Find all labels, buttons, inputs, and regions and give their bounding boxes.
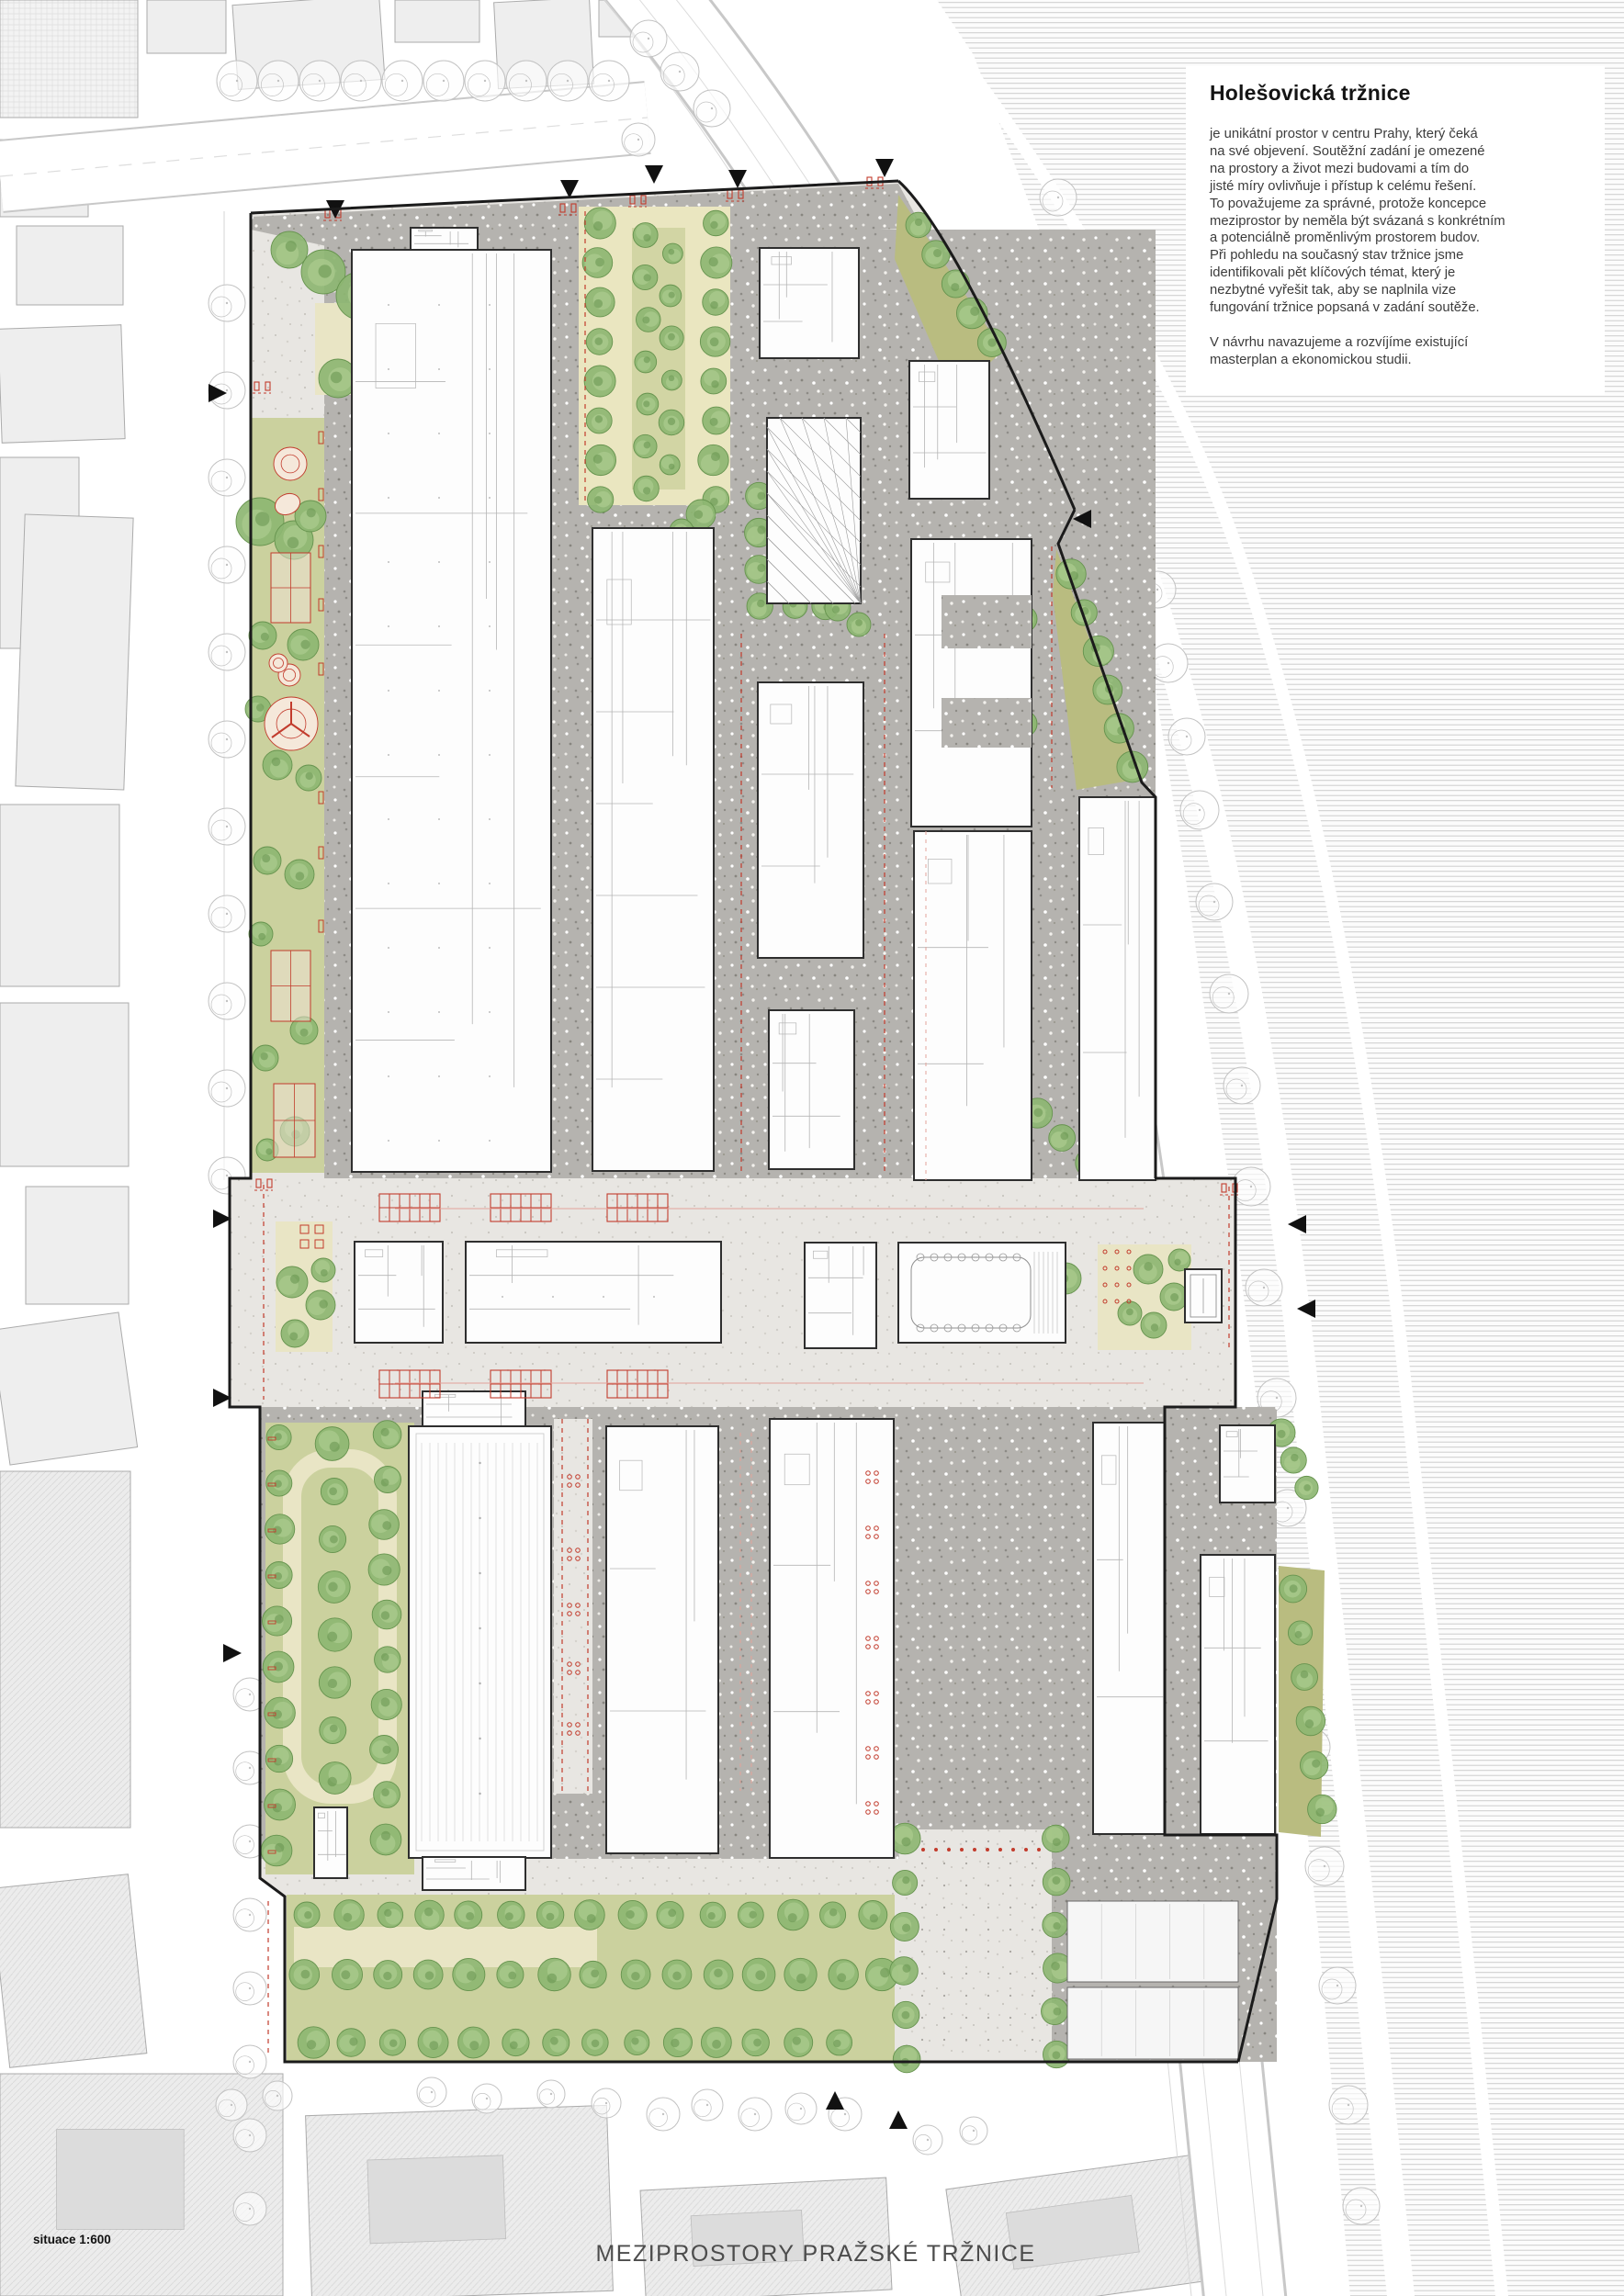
- circle: [1312, 1760, 1320, 1768]
- circle: [1170, 1293, 1179, 1301]
- tree-icon: [701, 247, 732, 278]
- plaza-dot: [1032, 1840, 1033, 1842]
- context-tree-icon: [537, 2080, 565, 2108]
- tree-icon: [375, 1647, 400, 1672]
- tree-icon: [742, 2029, 769, 2055]
- circle: [502, 1296, 503, 1298]
- red-dot: [960, 1848, 964, 1851]
- context-building: [16, 514, 133, 790]
- circle: [226, 651, 228, 653]
- play-sand-circle: [269, 654, 288, 672]
- tree-icon: [704, 1960, 733, 1989]
- circle: [479, 1627, 480, 1629]
- circle: [438, 497, 440, 499]
- plaza-dot: [1032, 1885, 1033, 1886]
- context-building: [147, 0, 226, 53]
- rect: [1067, 1987, 1238, 2059]
- circle: [226, 389, 228, 391]
- tree-icon: [418, 2027, 448, 2057]
- market-hall: [767, 418, 861, 603]
- circle: [328, 1582, 337, 1592]
- circle: [300, 640, 310, 649]
- circle: [381, 1479, 389, 1487]
- context-tree-icon: [233, 2119, 266, 2152]
- circle: [383, 1972, 391, 1980]
- hall-pocket: [942, 595, 1032, 648]
- circle: [438, 818, 440, 820]
- circle: [710, 337, 719, 346]
- tree-icon: [413, 1960, 443, 1989]
- circle: [595, 415, 603, 422]
- plaza-dot: [921, 1929, 923, 1930]
- circle: [915, 219, 922, 226]
- circle: [1250, 1186, 1252, 1187]
- tree-icon: [337, 2029, 366, 2057]
- tree-icon: [276, 1266, 308, 1298]
- circle: [643, 487, 650, 494]
- circle: [712, 2040, 721, 2049]
- circle: [479, 1517, 480, 1519]
- circle: [668, 1909, 676, 1918]
- tree-icon: [1133, 1255, 1163, 1284]
- circle: [710, 301, 718, 310]
- rect: [1067, 1901, 1238, 1982]
- plaza-dot: [965, 1840, 967, 1842]
- circle: [833, 2040, 840, 2047]
- tree-icon: [584, 208, 615, 239]
- circle: [388, 497, 389, 499]
- context-building: [395, 0, 479, 42]
- circle: [1287, 1507, 1289, 1509]
- circle: [489, 1075, 491, 1077]
- tree-icon: [634, 434, 657, 457]
- circle: [711, 107, 713, 109]
- circle: [587, 1914, 596, 1923]
- tree-icon: [662, 243, 682, 264]
- sheet-title: MEZIPROSTORY PRAŽSKÉ TRŽNICE: [595, 2241, 1035, 2268]
- circle: [669, 464, 675, 470]
- tree-icon: [742, 1958, 775, 1991]
- market-hall: [805, 1243, 876, 1348]
- tree-icon: [271, 231, 308, 268]
- tree-icon: [254, 847, 281, 874]
- plaza-dot: [987, 1863, 989, 1864]
- context-tree-icon: [382, 61, 423, 101]
- circle: [388, 818, 389, 820]
- circle: [231, 2104, 232, 2106]
- plaza-dot: [921, 1995, 923, 1997]
- tree-icon: [621, 1960, 650, 1989]
- circle: [1051, 1962, 1060, 1971]
- circle: [788, 1913, 797, 1922]
- context-tree-icon: [1305, 1847, 1344, 1885]
- circle: [438, 304, 440, 306]
- tree-icon: [378, 1902, 403, 1928]
- tree-icon: [294, 1902, 320, 1928]
- circle: [489, 625, 491, 627]
- context-tree-icon: [647, 2098, 680, 2131]
- tree-icon: [281, 1320, 309, 1347]
- context-tree-icon: [622, 123, 655, 156]
- circle: [319, 80, 321, 82]
- circle: [1186, 736, 1188, 737]
- circle: [550, 2093, 552, 2095]
- circle: [1199, 809, 1201, 811]
- context-tree-icon: [1329, 2086, 1368, 2124]
- tree-icon: [368, 1554, 400, 1585]
- circle: [711, 380, 718, 388]
- circle: [307, 2040, 316, 2049]
- circle: [469, 2041, 479, 2050]
- circle: [1305, 1719, 1314, 1728]
- tree-icon: [584, 366, 615, 397]
- plaza-dot: [987, 1973, 989, 1975]
- plaza-dot: [943, 1973, 945, 1975]
- circle: [1151, 1323, 1158, 1331]
- circle: [273, 1710, 282, 1719]
- plaza-dot: [921, 1863, 923, 1864]
- tree-icon: [298, 2027, 329, 2058]
- tree-icon: [659, 410, 684, 435]
- circle: [637, 139, 639, 141]
- plaza-dot: [965, 1929, 967, 1930]
- circle: [855, 619, 863, 626]
- circle: [757, 525, 765, 534]
- circle: [653, 1296, 655, 1298]
- context-tree-icon: [739, 2098, 772, 2131]
- plaza-dot: [921, 1907, 923, 1908]
- circle: [707, 1912, 715, 1919]
- tree-icon: [458, 2027, 490, 2058]
- tree-icon: [618, 1900, 647, 1929]
- circle: [276, 2095, 278, 2097]
- context-tree-icon: [209, 808, 245, 845]
- plaza-dot: [965, 2017, 967, 2019]
- market-hall: [409, 1426, 551, 1858]
- circle: [275, 1615, 284, 1624]
- circle: [510, 2042, 518, 2050]
- context-tree-icon: [209, 983, 245, 1019]
- red-dot: [1011, 1848, 1015, 1851]
- plaza-dot: [1054, 2039, 1055, 2041]
- plaza-dot: [965, 1995, 967, 1997]
- tree-icon: [820, 1902, 846, 1928]
- circle: [258, 933, 265, 940]
- circle: [714, 1969, 723, 1978]
- tree-icon: [296, 765, 321, 791]
- tree-icon: [1291, 1664, 1318, 1691]
- entrance-arrow-icon: [223, 1644, 242, 1662]
- circle: [800, 2108, 802, 2110]
- tree-icon: [318, 1571, 350, 1604]
- tree-icon: [588, 487, 614, 512]
- plaza-dot: [965, 1885, 967, 1886]
- circle: [1241, 1085, 1243, 1086]
- market-hall: [352, 250, 551, 1172]
- tree-icon: [253, 1045, 278, 1071]
- circle: [793, 2036, 801, 2044]
- plaza-dot: [1032, 1951, 1033, 1953]
- context-tree-icon: [233, 2045, 266, 2078]
- circle: [1303, 1484, 1311, 1491]
- circle: [796, 1974, 806, 1984]
- tree-icon: [1296, 1706, 1325, 1735]
- circle: [489, 1011, 491, 1013]
- circle: [319, 1300, 328, 1309]
- circle: [226, 564, 228, 566]
- plaza-dot: [987, 1840, 989, 1842]
- tree-icon: [1295, 1476, 1318, 1499]
- market-hall: [1067, 1901, 1238, 1982]
- circle: [288, 537, 299, 549]
- circle: [1263, 1287, 1265, 1289]
- circle: [902, 1924, 910, 1932]
- circle: [755, 1970, 765, 1980]
- circle: [1033, 1109, 1043, 1118]
- circle: [880, 1968, 890, 1978]
- tree-icon: [1280, 1575, 1307, 1603]
- circle: [349, 2037, 357, 2045]
- circle: [1053, 1838, 1061, 1846]
- context-tree-icon: [692, 2089, 723, 2121]
- circle: [381, 1428, 389, 1436]
- circle: [443, 80, 445, 82]
- circle: [438, 1011, 440, 1013]
- plaza-dot: [943, 2017, 945, 2019]
- scale-label: situace 1:600: [33, 2233, 111, 2246]
- context-tree-icon: [960, 2117, 987, 2144]
- circle: [603, 1296, 604, 1298]
- circle: [489, 497, 491, 499]
- circle: [668, 418, 675, 425]
- circle: [902, 1964, 910, 1973]
- market-hall: [423, 1391, 525, 1430]
- circle: [304, 1911, 311, 1919]
- tree-icon: [285, 860, 314, 889]
- tree-icon: [582, 2030, 609, 2056]
- tree-icon: [320, 1717, 346, 1744]
- circle: [249, 1987, 251, 1989]
- circle: [255, 512, 270, 526]
- circle: [1053, 2051, 1061, 2059]
- circle: [1053, 1922, 1060, 1930]
- red-dot: [947, 1848, 951, 1851]
- tree-icon: [637, 393, 659, 415]
- tree-icon: [660, 455, 680, 475]
- play-sand-circle: [274, 447, 307, 480]
- circle: [1336, 1985, 1338, 1986]
- circle: [388, 1140, 389, 1142]
- tree-icon: [633, 264, 658, 289]
- context-tree-icon: [209, 721, 245, 758]
- plaza-dot: [1054, 1863, 1055, 1864]
- circle: [388, 368, 389, 370]
- market-hall: [769, 1010, 854, 1169]
- context-tree-icon: [1196, 884, 1233, 920]
- circle: [261, 633, 269, 641]
- tree-icon: [315, 1427, 349, 1461]
- circle: [1295, 1631, 1303, 1638]
- context-building: [0, 1312, 138, 1465]
- circle: [669, 249, 675, 255]
- context-tree-icon: [465, 61, 505, 101]
- circle: [547, 1974, 558, 1984]
- circle: [901, 1837, 910, 1846]
- circle: [401, 80, 403, 82]
- context-tree-icon: [589, 61, 629, 101]
- plaza-dot: [943, 1863, 945, 1864]
- tree-icon: [784, 2029, 813, 2057]
- circle: [382, 1746, 390, 1754]
- context-tree-icon: [233, 2192, 266, 2225]
- circle: [331, 372, 343, 384]
- circle: [1174, 1259, 1180, 1266]
- tree-icon: [318, 1618, 351, 1651]
- market-hall: [411, 228, 478, 252]
- tree-icon: [635, 351, 657, 373]
- rect: [767, 418, 861, 603]
- tree-icon: [634, 476, 660, 501]
- tree-icon: [660, 285, 682, 307]
- circle: [236, 80, 238, 82]
- context-tree-icon: [506, 61, 547, 101]
- tree-icon: [289, 1960, 320, 1990]
- circle: [329, 1487, 337, 1495]
- circle: [594, 337, 603, 345]
- tree-icon: [1308, 1795, 1336, 1823]
- plaza-dot: [943, 1995, 945, 1997]
- site-plan-sheet: { "page": {"width": 1768, "height": 2500…: [0, 0, 1624, 2296]
- plaza-dot: [1032, 1973, 1033, 1975]
- context-tree-icon: [913, 2125, 942, 2155]
- context-tree-icon: [209, 1070, 245, 1107]
- tree-icon: [372, 1600, 401, 1629]
- tree-icon: [1280, 1447, 1306, 1473]
- circle: [870, 1914, 878, 1922]
- tree-icon: [703, 407, 730, 434]
- tree-icon: [890, 1912, 919, 1941]
- circle: [749, 1911, 756, 1919]
- circle: [226, 1000, 228, 1002]
- tree-icon: [369, 1510, 400, 1540]
- tree-icon: [1093, 675, 1122, 704]
- tree-icon: [701, 368, 727, 394]
- tree-icon: [1043, 1868, 1070, 1896]
- tree-icon: [738, 1902, 763, 1928]
- tree-icon: [379, 2030, 405, 2055]
- plaza-dot: [1032, 1863, 1033, 1864]
- plaza-dot: [921, 2039, 923, 2041]
- circle: [710, 221, 717, 229]
- tree-icon: [249, 922, 273, 946]
- tree-icon: [859, 1900, 887, 1929]
- market-hall: [898, 1243, 1066, 1343]
- circle: [489, 433, 491, 434]
- red-dot: [986, 1848, 989, 1851]
- plaza-dot: [1009, 1885, 1011, 1886]
- tree-icon: [778, 1899, 809, 1930]
- circle: [226, 302, 228, 304]
- circle: [951, 283, 959, 291]
- circle: [360, 80, 362, 82]
- circle: [438, 883, 440, 884]
- circle: [388, 304, 389, 306]
- tree-icon: [575, 1900, 605, 1930]
- circle: [381, 1653, 389, 1661]
- tree-icon: [370, 1824, 401, 1855]
- circle: [1167, 662, 1169, 664]
- circle: [273, 1526, 282, 1536]
- tree-icon: [1160, 1283, 1188, 1311]
- tree-icon: [1043, 1825, 1070, 1852]
- circle: [290, 1275, 299, 1284]
- plaza-dot: [943, 1929, 945, 1930]
- context-tree-icon: [1319, 1967, 1356, 2004]
- circle: [381, 1611, 390, 1620]
- tree-icon: [262, 1606, 291, 1636]
- circle: [381, 1788, 389, 1796]
- circle: [1054, 2008, 1062, 2016]
- tree-icon: [847, 613, 871, 636]
- circle: [388, 947, 389, 949]
- circle: [479, 1572, 480, 1574]
- plaza-dot: [965, 2039, 967, 2041]
- tree-icon: [333, 1959, 363, 1989]
- market-hall: [314, 1807, 347, 1878]
- circle: [249, 2134, 251, 2136]
- tree-icon: [249, 622, 276, 649]
- context-tree-icon: [299, 61, 340, 101]
- tree-icon: [586, 408, 612, 433]
- entrance-arrow-icon: [875, 159, 894, 177]
- plaza-dot: [1054, 1951, 1055, 1953]
- circle: [672, 1972, 682, 1981]
- red-dot: [1037, 1848, 1041, 1851]
- plaza-dot: [1032, 1995, 1033, 1997]
- circle: [484, 80, 486, 82]
- circle: [438, 368, 440, 370]
- circle: [591, 1969, 599, 1977]
- circle: [669, 292, 675, 298]
- circle: [1144, 1262, 1153, 1271]
- circle: [388, 561, 389, 563]
- circle: [593, 221, 603, 231]
- tree-icon: [321, 1479, 347, 1505]
- circle: [382, 1521, 391, 1530]
- circle: [643, 400, 649, 407]
- circle: [249, 1840, 251, 1842]
- plaza-dot: [1009, 2017, 1011, 2019]
- circle: [1126, 1308, 1133, 1315]
- circle: [249, 2061, 251, 2063]
- circle: [265, 1148, 272, 1154]
- entrance-arrow-icon: [645, 165, 663, 184]
- plaza-dot: [987, 1995, 989, 1997]
- circle: [709, 257, 718, 266]
- plaza-dot: [987, 2017, 989, 2019]
- circle: [525, 80, 527, 82]
- context-tree-icon: [423, 61, 464, 101]
- tree-icon: [698, 445, 728, 475]
- circle: [489, 947, 491, 949]
- circle: [567, 80, 569, 82]
- plaza-dot: [1009, 1929, 1011, 1930]
- circle: [593, 455, 603, 464]
- plaza-dot: [987, 2039, 989, 2041]
- circle: [388, 883, 389, 884]
- plaza-dot: [987, 1907, 989, 1908]
- circle: [226, 738, 228, 740]
